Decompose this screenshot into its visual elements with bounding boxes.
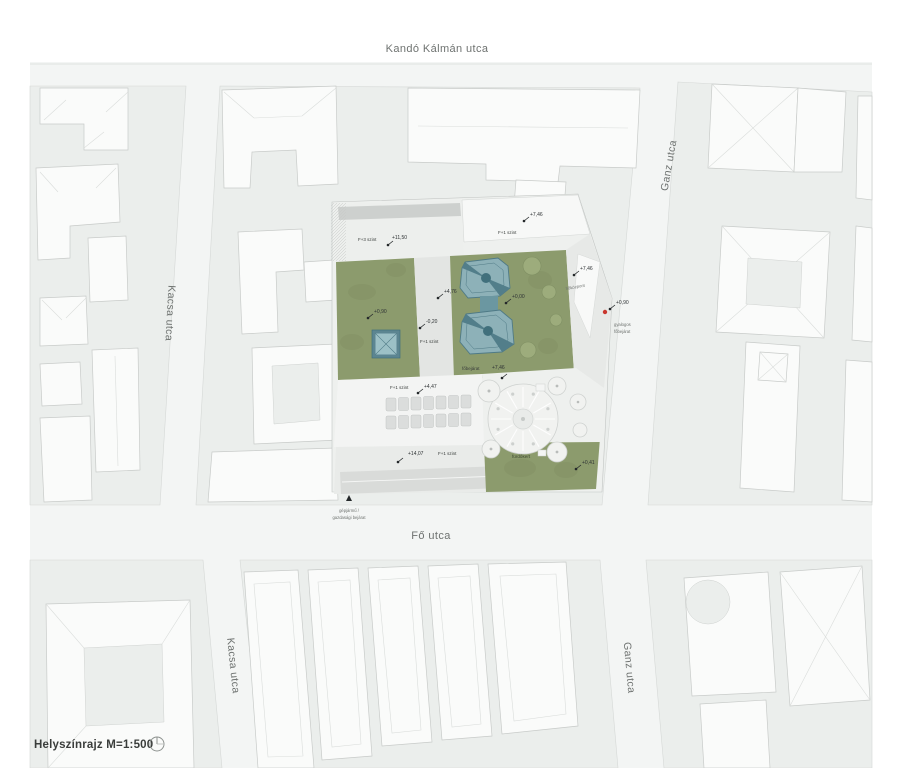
title-block: Helyszínrajz M=1:500 <box>34 737 164 751</box>
label-furdokert: fürdőkert <box>512 454 531 459</box>
drawing-title: Helyszínrajz M=1:500 <box>34 739 153 751</box>
label-elev-476: +4,76 <box>444 289 457 295</box>
label-f1-szint-bottom: F+1 szint <box>438 451 457 456</box>
label-fobejarat: főbejárat <box>462 366 480 371</box>
building-footprint <box>794 88 846 172</box>
label-elev-746-right: +7,46 <box>580 266 593 272</box>
glass-roof-north <box>460 258 510 298</box>
tree <box>520 342 536 358</box>
street-fo <box>30 505 872 560</box>
label-f1-szint-mid: F+1 szint <box>390 385 409 390</box>
label-f3-szint: F+3 szint <box>358 237 377 242</box>
label-pedestrian-entrance-line1: gyalogos <box>614 322 631 327</box>
building-footprint <box>856 96 872 200</box>
tree <box>542 285 556 299</box>
site-plan-canvas: Kandó Kálmán utca Kacsa utca Ganz utca F… <box>0 0 902 768</box>
building-footprint <box>92 348 140 472</box>
label-elev-090-court: +0,90 <box>374 309 387 315</box>
hatched-wall <box>331 203 346 261</box>
label-elev-746-mid: +7,46 <box>492 365 505 371</box>
glass-roof-south <box>460 310 514 354</box>
middle-wing <box>334 374 484 447</box>
roof-f1 <box>462 195 590 242</box>
roof-box <box>536 384 545 391</box>
tree <box>550 314 562 326</box>
label-f1-szint-top: F+1 szint <box>498 230 517 235</box>
courtyard-green-left <box>336 258 420 380</box>
street-label-kando: Kandó Kálmán utca <box>386 43 489 55</box>
tree <box>523 257 541 275</box>
entrance-marker-red <box>603 310 607 314</box>
label-elev-1150: +11,50 <box>392 235 407 241</box>
label-elev-090-street: +0,90 <box>616 300 629 306</box>
label-elev-041: +0,41 <box>582 460 595 466</box>
building-footprint <box>208 448 338 502</box>
label-elev-1407: +14,07 <box>408 451 424 457</box>
central-walkway <box>414 256 454 380</box>
building-footprint <box>304 260 336 302</box>
building-footprint <box>88 236 128 302</box>
building-footprint <box>700 700 770 768</box>
site-plan-drawing: Kandó Kálmán utca Kacsa utca Ganz utca F… <box>0 0 902 768</box>
street-label-fo: Fő utca <box>411 530 451 542</box>
label-pedestrian-entrance-line2: főbejárat <box>614 329 631 334</box>
label-elev-minus020: -0,20 <box>426 319 438 325</box>
building-footprint <box>40 362 82 406</box>
label-vehicle-entrance-line2: gazdasági bejárat <box>332 515 366 520</box>
label-vehicle-entrance-line1: gépjármű / <box>339 508 360 513</box>
building-footprint <box>842 360 872 502</box>
label-f1-szint-path: F+1 szint <box>420 339 439 344</box>
building-footprint <box>488 562 578 734</box>
circular-courtyard <box>686 580 730 624</box>
small-dome <box>573 423 587 437</box>
building-footprint <box>40 416 92 502</box>
label-elev-000: +0,00 <box>512 294 525 300</box>
inner-courtyard <box>84 644 164 726</box>
label-elev-447: +4,47 <box>424 384 437 390</box>
inner-courtyard <box>746 258 802 308</box>
inner-courtyard <box>272 363 320 424</box>
roof-box <box>538 450 546 456</box>
label-elev-746-top: +7,46 <box>530 212 543 218</box>
